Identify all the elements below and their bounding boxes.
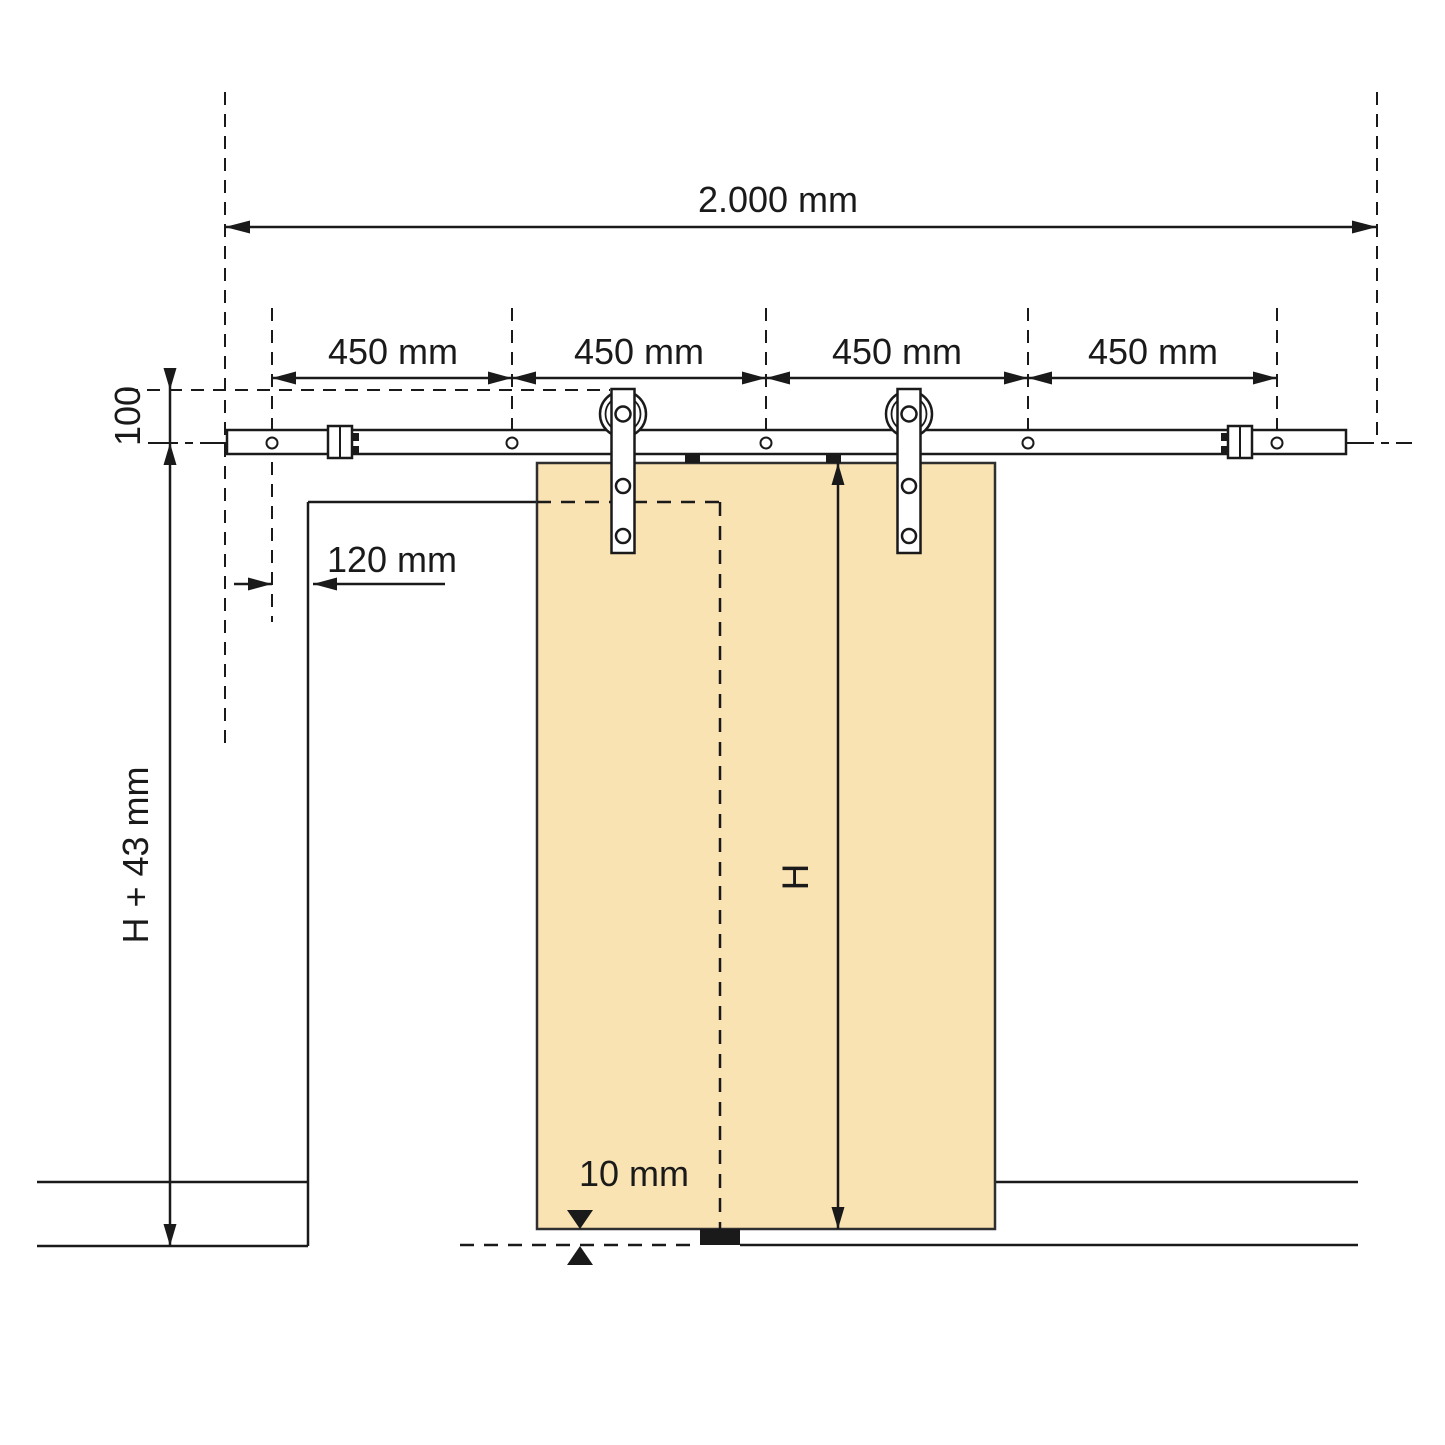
end-stop-screw	[352, 446, 359, 454]
door-height-label: H	[775, 864, 816, 891]
arrowhead-up	[164, 443, 177, 465]
arrowhead-right	[1352, 221, 1377, 234]
arrowhead	[1004, 372, 1028, 385]
rail-hole-3	[761, 438, 772, 449]
door-stop-mark-left	[685, 455, 700, 463]
spacing-label-2: 450 mm	[574, 331, 704, 372]
rail-axis-height-label: 100	[107, 386, 148, 446]
arrowhead	[742, 372, 766, 385]
track-length-label: 2.000 mm	[698, 179, 858, 220]
arrowhead-down	[164, 368, 177, 390]
door-panel	[537, 463, 995, 1229]
track-rail	[148, 426, 1412, 458]
rail-hole-5	[1272, 438, 1283, 449]
first-hole-offset-label: 120 mm	[327, 539, 457, 580]
arrowhead	[766, 372, 790, 385]
gap-marker-up	[567, 1246, 593, 1265]
floor-guide	[700, 1229, 740, 1245]
strap-hole	[902, 529, 916, 543]
arrowhead	[272, 372, 296, 385]
arrowhead-left	[225, 221, 250, 234]
arrowhead	[512, 372, 536, 385]
arrowhead	[488, 372, 512, 385]
rail-bar	[227, 430, 1346, 454]
spacing-label-1: 450 mm	[328, 331, 458, 372]
end-stop-screw	[352, 433, 359, 441]
track-length-dimension: 2.000 mm	[225, 179, 1377, 234]
strap-hole	[616, 529, 630, 543]
arrowhead	[1028, 372, 1052, 385]
rail-hole-2	[507, 438, 518, 449]
left-height-dimensions: 100 H + 43 mm	[107, 368, 177, 1246]
strap-hole	[616, 479, 630, 493]
arrowhead-down	[164, 1224, 177, 1246]
spacing-label-4: 450 mm	[1088, 331, 1218, 372]
end-stop-screw	[1221, 446, 1228, 454]
floor-gap-label: 10 mm	[579, 1153, 689, 1194]
strap-hole	[902, 479, 916, 493]
rail-hole-4	[1023, 438, 1034, 449]
door-stop-mark-right	[826, 455, 841, 463]
wall-offset-dimension: 120 mm	[234, 539, 457, 591]
total-height-label: H + 43 mm	[115, 766, 156, 943]
hole-spacing-dimension: 450 mm 450 mm 450 mm 450 mm	[272, 331, 1277, 385]
rail-hole-1	[267, 438, 278, 449]
spacing-label-3: 450 mm	[832, 331, 962, 372]
axle-hole	[902, 407, 917, 422]
door	[537, 455, 995, 1245]
end-stop-screw	[1221, 433, 1228, 441]
arrowhead-right	[248, 578, 272, 591]
drawing-canvas: 2.000 mm 450 mm 450 mm 450 mm 450 mm 100…	[0, 0, 1445, 1445]
arrowhead	[1253, 372, 1277, 385]
installation-drawing: 2.000 mm 450 mm 450 mm 450 mm 450 mm 100…	[0, 0, 1445, 1445]
axle-hole	[616, 407, 631, 422]
